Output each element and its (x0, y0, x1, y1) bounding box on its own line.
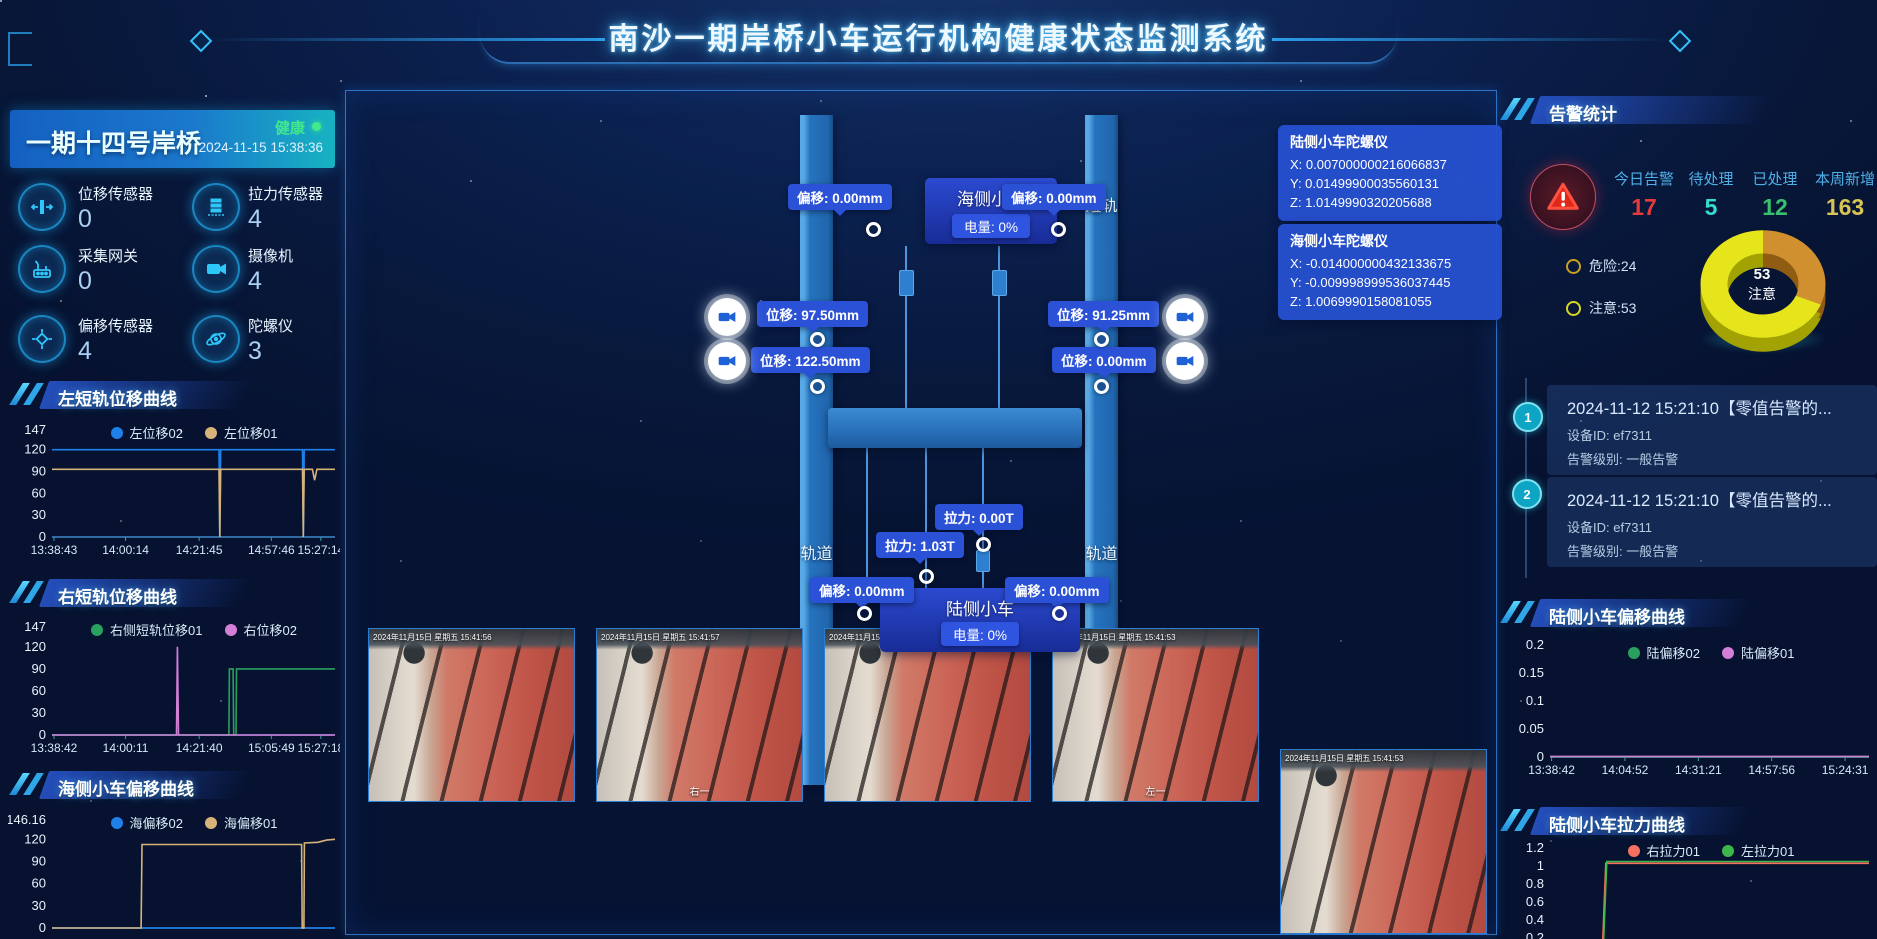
svg-text:0: 0 (39, 529, 46, 544)
svg-text:90: 90 (32, 853, 46, 868)
camera-button[interactable] (1166, 298, 1204, 336)
sensor-item-gateway: 采集网关 0 (78, 245, 138, 296)
warning-icon (1530, 164, 1596, 230)
camera-timestamp: 2024年11月15日 星期五 15:41:57 (601, 632, 720, 643)
svg-text:15:24:31: 15:24:31 (1822, 763, 1869, 777)
svg-text:15:27:18: 15:27:18 (297, 741, 340, 755)
svg-text:120: 120 (24, 442, 46, 457)
svg-text:0.4: 0.4 (1526, 912, 1544, 927)
legend-item[interactable]: 左位移02 (111, 423, 183, 442)
alarm-stats-title: 告警统计 (1505, 95, 1865, 125)
gyro-z: Z: 1.0149990320205688 (1290, 193, 1490, 212)
crane-name: 一期十四号岸桥 (26, 124, 201, 160)
chart-legend: 右拉力01左拉力01 (1549, 841, 1873, 860)
chart-legend: 陆偏移02陆偏移01 (1549, 643, 1873, 662)
dashboard-root: 南沙一期岸桥小车运行机构健康状态监测系统 一期十四号岸桥 健康 2024-11-… (0, 0, 1877, 939)
gyro-x: X: 0.007000000216066837 (1290, 155, 1490, 174)
svg-text:0: 0 (39, 727, 46, 742)
video-camera-icon (717, 307, 737, 327)
sensor-value: 3 (248, 337, 293, 366)
alarm-device-id: 设备ID: ef7311 (1567, 425, 1652, 444)
svg-text:0.2: 0.2 (1526, 638, 1544, 652)
cable-sheave (899, 270, 914, 296)
svg-text:147: 147 (24, 422, 46, 437)
svg-text:90: 90 (32, 661, 46, 676)
cable-sheave (992, 270, 1007, 296)
sensor-item-offset: 偏移传感器 4 (78, 315, 153, 366)
legend-dot-icon (1628, 647, 1640, 659)
tension-marker (976, 537, 991, 552)
crane-header-card[interactable]: 一期十四号岸桥 健康 2024-11-15 15:38:36 (10, 110, 335, 168)
legend-dot-icon (205, 427, 217, 439)
displacement-tip: 位移: 91.25mm (1048, 301, 1159, 327)
sensor-item-gyro: 陀螺仪 3 (248, 315, 293, 366)
svg-text:30: 30 (32, 507, 46, 522)
svg-text:1.2: 1.2 (1526, 840, 1544, 855)
camera-count-icon (192, 245, 240, 293)
camera-feed-1[interactable]: 2024年11月15日 星期五 15:41:56 (368, 628, 575, 802)
sea-offset-left-marker (866, 222, 881, 237)
svg-text:60: 60 (32, 876, 46, 891)
land-trolley-tension-chart[interactable]: 右拉力01左拉力01 1.210.80.60.40.2 (1505, 836, 1877, 939)
svg-text:14:57:46: 14:57:46 (248, 543, 295, 557)
sling-cable (866, 448, 868, 588)
svg-text:14:57:56: 14:57:56 (1748, 763, 1795, 777)
sensor-value: 4 (248, 267, 293, 296)
legend-item[interactable]: 陆偏移02 (1628, 643, 1700, 662)
land-offset-right-marker (1052, 606, 1067, 621)
rail-label-track-left: 轨道 (800, 545, 833, 564)
sensor-value: 0 (78, 205, 153, 234)
legend-item[interactable]: 左拉力01 (1722, 841, 1794, 860)
sea-trolley-offset-chart[interactable]: 海偏移02海偏移01 146.161209060300 (8, 808, 340, 939)
svg-text:14:21:40: 14:21:40 (176, 741, 223, 755)
camera-feed-4[interactable]: 2024年11月15日 星期五 15:41:53 左一 (1052, 628, 1259, 802)
svg-text:60: 60 (32, 485, 46, 500)
alarm-list-item[interactable]: 2024-11-12 15:21:10【零值告警的... 设备ID: ef731… (1547, 385, 1877, 475)
sensor-label: 陀螺仪 (248, 315, 293, 336)
legend-dot-icon (225, 624, 237, 636)
displacement-marker (810, 379, 825, 394)
svg-text:147: 147 (24, 619, 46, 634)
svg-text:120: 120 (24, 639, 46, 654)
svg-text:146.16: 146.16 (8, 812, 46, 827)
sensor-label: 采集网关 (78, 245, 138, 266)
donut-legend-notice[interactable]: 注意:53 (1566, 298, 1636, 318)
svg-text:14:04:52: 14:04:52 (1602, 763, 1649, 777)
tension-tip: 拉力: 1.03T (876, 532, 964, 558)
svg-text:0: 0 (39, 920, 46, 935)
svg-text:60: 60 (32, 683, 46, 698)
camera-button[interactable] (708, 298, 746, 336)
gyro-z: Z: 1.0069990158081055 (1290, 292, 1490, 311)
gyro-y: Y: -0.009998999536037445 (1290, 273, 1490, 292)
chart-title-right-short-rail: 右短轨位移曲线 (14, 578, 324, 608)
legend-ring-icon (1566, 301, 1581, 316)
land-offset-left-tip: 偏移: 0.00mm (810, 577, 914, 603)
displacement-marker (1094, 379, 1109, 394)
alarm-list-item[interactable]: 2024-11-12 15:21:10【零值告警的... 设备ID: ef731… (1547, 477, 1877, 567)
donut-legend-danger[interactable]: 危险:24 (1566, 256, 1636, 276)
camera-timestamp: 2024年11月15日 星期五 15:41:53 (1285, 753, 1404, 764)
offset-sensor-icon (18, 315, 66, 363)
chart-legend: 右侧短轨位移01右位移02 (52, 620, 336, 639)
sensor-value: 4 (248, 205, 323, 234)
sensor-label: 偏移传感器 (78, 315, 153, 336)
legend-dot-icon (111, 427, 123, 439)
svg-text:14:00:11: 14:00:11 (103, 741, 149, 755)
camera-feed-2[interactable]: 2024年11月15日 星期五 15:41:57 右一 (596, 628, 803, 802)
displacement-marker (1094, 332, 1109, 347)
cable-sheave (976, 550, 990, 572)
gateway-icon (18, 245, 66, 293)
tension-marker (919, 569, 934, 584)
legend-item[interactable]: 右位移02 (225, 620, 297, 639)
displacement-tip: 位移: 97.50mm (757, 301, 868, 327)
displacement-tip: 位移: 0.00mm (1052, 347, 1156, 373)
svg-text:0.2: 0.2 (1526, 930, 1544, 939)
gyroscope-icon (192, 315, 240, 363)
svg-text:15:05:49: 15:05:49 (248, 741, 295, 755)
land-gyro-readout: 陆侧小车陀螺仪 X: 0.007000000216066837 Y: 0.014… (1278, 125, 1502, 221)
chart-legend: 海偏移02海偏移01 (52, 813, 336, 832)
svg-text:0.8: 0.8 (1526, 876, 1544, 891)
svg-text:1: 1 (1537, 858, 1544, 873)
svg-text:90: 90 (32, 463, 46, 478)
gyro-title: 海侧小车陀螺仪 (1290, 231, 1490, 251)
left-short-rail-chart[interactable]: 左位移02左位移01 147120906030013:38:4314:00:14… (8, 418, 340, 568)
svg-text:13:38:42: 13:38:42 (31, 741, 78, 755)
legend-item[interactable]: 陆偏移01 (1722, 643, 1794, 662)
alarm-index-badge: 1 (1513, 402, 1543, 432)
spreader-beam (828, 408, 1082, 448)
land-trolley-battery: 电量: 0% (941, 622, 1019, 646)
health-status-badge: 健康 (275, 117, 305, 138)
rail-label-track-right: 轨道 (1085, 545, 1118, 564)
right-short-rail-chart[interactable]: 右侧短轨位移01右位移02 147120906030013:38:4214:00… (8, 615, 340, 763)
status-timestamp: 2024-11-15 15:38:36 (199, 140, 323, 155)
legend-dot-icon (205, 817, 217, 829)
land-offset-left-marker (857, 606, 872, 621)
gyro-y: Y: 0.01499900035560131 (1290, 174, 1490, 193)
alarm-device-id: 设备ID: ef7311 (1567, 517, 1652, 536)
sea-offset-right-tip: 偏移: 0.00mm (1002, 184, 1106, 210)
displacement-tip: 位移: 122.50mm (751, 347, 870, 373)
land-offset-right-tip: 偏移: 0.00mm (1005, 577, 1109, 603)
svg-text:15:27:14: 15:27:14 (297, 543, 340, 557)
tension-tip: 拉力: 0.00T (935, 504, 1023, 530)
svg-text:30: 30 (32, 705, 46, 720)
gyro-title: 陆侧小车陀螺仪 (1290, 132, 1490, 152)
camera-feed-3[interactable]: 2024年11月15日 星期五 15:41:51 (824, 628, 1031, 802)
stat-week-new: 本周新增 163 (1799, 168, 1877, 221)
video-camera-icon (717, 351, 737, 371)
legend-ring-icon (1566, 259, 1581, 274)
legend-dot-icon (1628, 845, 1640, 857)
svg-text:14:31:21: 14:31:21 (1675, 763, 1722, 777)
video-camera-icon (1175, 307, 1195, 327)
gyro-x: X: -0.014000000432133675 (1290, 254, 1490, 273)
svg-text:13:38:43: 13:38:43 (31, 543, 78, 557)
video-camera-icon (1175, 351, 1195, 371)
displacement-sensor-icon (18, 183, 66, 231)
land-trolley-offset-chart[interactable]: 陆偏移02陆偏移01 0.20.150.10.05013:38:4214:04:… (1505, 638, 1877, 778)
camera-feed-5[interactable]: 2024年11月15日 星期五 15:41:53 (1280, 749, 1487, 934)
camera-caption: 右一 (597, 783, 802, 798)
svg-text:0: 0 (1537, 749, 1544, 764)
sensor-value: 0 (78, 267, 138, 296)
donut-center-label: 53 注意 (1731, 266, 1793, 304)
legend-item[interactable]: 海偏移01 (205, 813, 277, 832)
health-status-dot (312, 122, 321, 131)
sea-trolley-battery: 电量: 0% (952, 214, 1030, 238)
alarm-level: 告警级别: 一般告警 (1567, 449, 1678, 468)
camera-timestamp: 2024年11月15日 星期五 15:41:56 (373, 632, 492, 643)
sea-gyro-readout: 海侧小车陀螺仪 X: -0.014000000432133675 Y: -0.0… (1278, 224, 1502, 320)
svg-text:0.15: 0.15 (1519, 665, 1544, 680)
page-title: 南沙一期岸桥小车运行机构健康状态监测系统 (0, 14, 1877, 58)
legend-item[interactable]: 左位移01 (205, 423, 277, 442)
svg-text:120: 120 (24, 831, 46, 846)
sensor-item-camera: 摄像机 4 (248, 245, 293, 296)
legend-item[interactable]: 海偏移02 (111, 813, 183, 832)
legend-dot-icon (91, 624, 103, 636)
sling-cable (925, 448, 927, 588)
sea-offset-left-tip: 偏移: 0.00mm (788, 184, 892, 210)
sensor-label: 拉力传感器 (248, 183, 323, 204)
alarm-title: 2024-11-12 15:21:10【零值告警的... (1567, 487, 1832, 511)
svg-text:0.05: 0.05 (1519, 721, 1544, 736)
sensor-item-tension: 拉力传感器 4 (248, 183, 323, 234)
alarm-level: 告警级别: 一般告警 (1567, 541, 1678, 560)
legend-item[interactable]: 右侧短轨位移01 (91, 620, 202, 639)
legend-dot-icon (111, 817, 123, 829)
legend-dot-icon (1722, 845, 1734, 857)
svg-text:14:00:14: 14:00:14 (102, 543, 149, 557)
sensor-item-displacement: 位移传感器 0 (78, 183, 153, 234)
alarm-index-badge: 2 (1512, 479, 1542, 509)
sensor-value: 4 (78, 337, 153, 366)
alarm-title: 2024-11-12 15:21:10【零值告警的... (1567, 395, 1832, 419)
svg-text:0.6: 0.6 (1526, 894, 1544, 909)
sea-offset-right-marker (1051, 222, 1066, 237)
svg-text:14:21:45: 14:21:45 (176, 543, 223, 557)
legend-dot-icon (1722, 647, 1734, 659)
chart-title-land-offset: 陆侧小车偏移曲线 (1505, 598, 1865, 628)
svg-text:30: 30 (32, 898, 46, 913)
legend-item[interactable]: 右拉力01 (1628, 841, 1700, 860)
displacement-marker (810, 332, 825, 347)
chart-title-sea-trolley-offset: 海侧小车偏移曲线 (14, 770, 324, 800)
svg-text:0.1: 0.1 (1526, 693, 1544, 708)
camera-button[interactable] (708, 342, 746, 380)
chart-title-left-short-rail: 左短轨位移曲线 (14, 380, 324, 410)
svg-text:13:38:42: 13:38:42 (1528, 763, 1575, 777)
tension-sensor-icon (192, 183, 240, 231)
sensor-label: 摄像机 (248, 245, 293, 266)
chart-title-land-tension: 陆侧小车拉力曲线 (1505, 806, 1865, 836)
camera-button[interactable] (1166, 342, 1204, 380)
chart-legend: 左位移02左位移01 (52, 423, 336, 442)
sensor-label: 位移传感器 (78, 183, 153, 204)
camera-caption: 左一 (1053, 783, 1258, 798)
